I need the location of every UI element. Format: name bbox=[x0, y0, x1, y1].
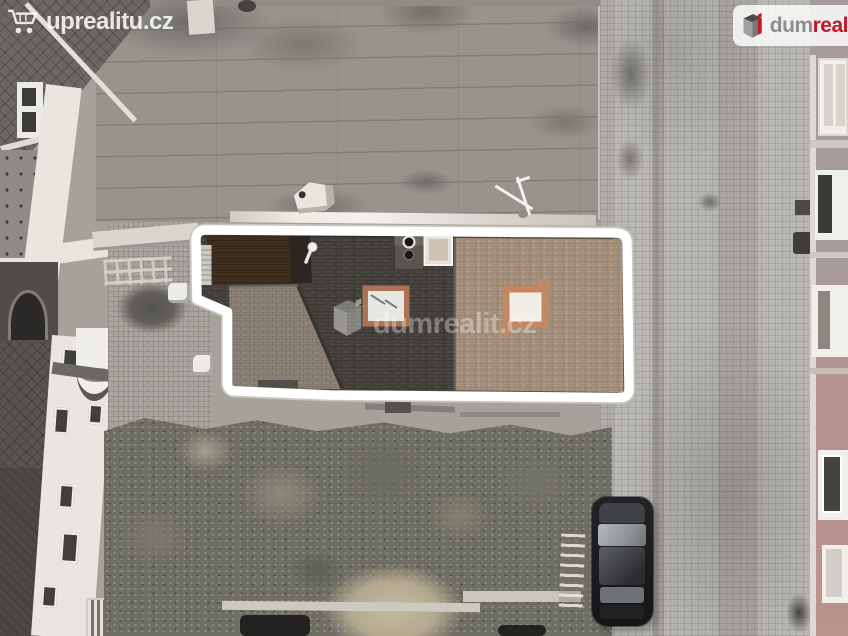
roof-top-edge bbox=[214, 0, 604, 6]
eaves-strip bbox=[233, 388, 618, 399]
agency-logo-badge: dumreal bbox=[733, 5, 848, 46]
garden-chair bbox=[168, 283, 190, 303]
facade-sill bbox=[810, 140, 848, 148]
facade-sill bbox=[810, 368, 848, 374]
car-roof bbox=[599, 547, 645, 585]
roof-edge-line bbox=[229, 286, 298, 287]
bin bbox=[385, 400, 411, 413]
rooftop-structure bbox=[187, 0, 215, 35]
tiled-lower-roof bbox=[229, 286, 343, 390]
car-hood bbox=[599, 503, 645, 523]
window-pane bbox=[826, 549, 842, 597]
dumreality-cube-icon bbox=[741, 8, 765, 44]
window bbox=[88, 404, 103, 425]
street-shadow bbox=[786, 593, 812, 633]
street-vegetation-stain bbox=[610, 38, 652, 110]
window bbox=[822, 545, 848, 603]
antenna-base bbox=[518, 210, 528, 218]
logo-text-gray: dum bbox=[770, 14, 813, 37]
parked-car-roof bbox=[240, 615, 310, 636]
stair-railing bbox=[559, 534, 586, 609]
roof-step bbox=[258, 380, 298, 391]
center-watermark-text: dumrealit.cz bbox=[373, 310, 536, 339]
parked-dark-car bbox=[592, 497, 653, 626]
dormer bbox=[17, 82, 43, 138]
street-stain bbox=[698, 192, 722, 212]
window bbox=[818, 58, 848, 136]
facade-sill bbox=[810, 252, 848, 258]
car-windshield bbox=[598, 524, 646, 546]
window bbox=[53, 407, 70, 434]
window bbox=[812, 285, 848, 357]
skylight-tab bbox=[539, 279, 549, 288]
dormer-window bbox=[22, 88, 36, 106]
dormer-window bbox=[22, 112, 36, 132]
window bbox=[58, 484, 75, 509]
logo-text-red: real bbox=[813, 14, 848, 37]
window-pane-open bbox=[818, 175, 832, 233]
wooden-deck bbox=[206, 234, 291, 285]
shopping-cart-icon bbox=[6, 8, 40, 36]
chimney-top bbox=[395, 230, 424, 246]
deck-shadow bbox=[289, 234, 312, 283]
street-stain bbox=[616, 138, 644, 180]
car-rear-window bbox=[600, 587, 644, 603]
trellis-ladder bbox=[103, 256, 172, 286]
window bbox=[815, 170, 848, 240]
window bbox=[818, 450, 848, 520]
parked-car-roof bbox=[498, 625, 546, 636]
chimney-flue bbox=[404, 237, 415, 248]
window bbox=[41, 585, 57, 608]
window-pane bbox=[822, 455, 842, 513]
roof-antenna bbox=[492, 176, 548, 220]
center-watermark: dumrealit.cz bbox=[330, 297, 536, 339]
dumreality-cube-icon bbox=[330, 297, 366, 339]
window-pane bbox=[836, 64, 845, 126]
small-roof-vent bbox=[308, 242, 317, 251]
aerial-photo-canvas: dumrealit.cz uprealitu.cz dumreal bbox=[0, 0, 848, 636]
eave-shadow bbox=[460, 412, 560, 417]
window bbox=[60, 532, 79, 563]
skylight-box bbox=[425, 234, 453, 265]
window-pane bbox=[824, 64, 833, 126]
car-trunk bbox=[600, 605, 644, 619]
agency-logo-text: dumreal bbox=[770, 14, 848, 38]
window-pane bbox=[818, 291, 830, 349]
rooftop-disc bbox=[238, 0, 256, 12]
vent-stem bbox=[306, 252, 310, 262]
chimney bbox=[395, 230, 424, 270]
chimney-flue bbox=[404, 250, 414, 260]
eave-shadow-top bbox=[205, 235, 613, 238]
skylight-box-glass bbox=[429, 239, 448, 261]
vent-opening bbox=[298, 191, 306, 199]
top-left-watermark: uprealitu.cz bbox=[6, 8, 173, 36]
garden-chair bbox=[193, 355, 213, 375]
top-left-watermark-text: uprealitu.cz bbox=[46, 8, 173, 36]
street-gutter bbox=[653, 0, 659, 636]
